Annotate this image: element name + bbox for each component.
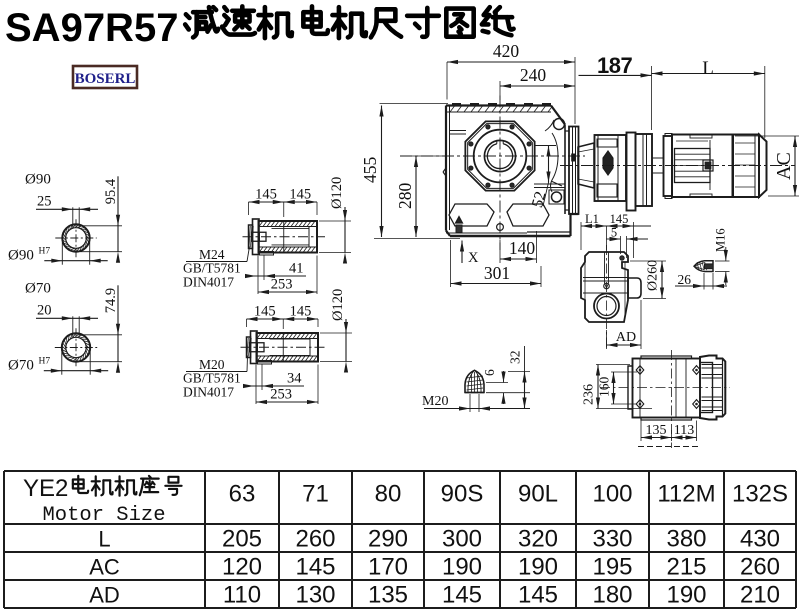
svg-text:430: 430 [740, 526, 780, 553]
svg-text:H7: H7 [39, 247, 51, 257]
svg-text:90S: 90S [441, 481, 484, 508]
svg-text:455: 455 [360, 157, 380, 184]
svg-text:145: 145 [442, 582, 482, 609]
svg-text:190: 190 [518, 554, 558, 581]
svg-text:236: 236 [582, 384, 597, 405]
svg-text:41: 41 [289, 261, 304, 277]
svg-text:L: L [702, 58, 714, 79]
svg-text:253: 253 [270, 387, 292, 403]
svg-text:145: 145 [295, 554, 335, 581]
svg-text:6: 6 [482, 369, 497, 376]
svg-text:Ø70: Ø70 [8, 358, 34, 374]
svg-text:Ø90: Ø90 [8, 248, 34, 264]
svg-text:253: 253 [271, 277, 293, 293]
svg-text:74.9: 74.9 [103, 288, 119, 313]
svg-text:205: 205 [222, 526, 262, 553]
svg-text:DIN4017: DIN4017 [183, 275, 234, 290]
svg-text:AC: AC [773, 152, 795, 180]
svg-text:Ø70: Ø70 [25, 280, 51, 296]
svg-text:M16: M16 [713, 228, 727, 252]
svg-text:95.4: 95.4 [103, 178, 119, 204]
svg-text:100: 100 [592, 481, 632, 508]
svg-text:190: 190 [442, 554, 482, 581]
svg-text:210: 210 [740, 582, 780, 609]
svg-text:71: 71 [302, 481, 329, 508]
svg-text:330: 330 [592, 526, 632, 553]
svg-text:320: 320 [518, 526, 558, 553]
svg-text:25: 25 [37, 193, 52, 209]
svg-text:80: 80 [375, 481, 402, 508]
svg-text:26: 26 [678, 272, 692, 287]
svg-text:L1: L1 [585, 212, 599, 226]
svg-text:DIN4017: DIN4017 [183, 385, 234, 400]
svg-text:SA97R57: SA97R57 [5, 6, 178, 50]
svg-text:380: 380 [666, 526, 706, 553]
svg-text:170: 170 [368, 554, 408, 581]
svg-text:180: 180 [592, 582, 632, 609]
svg-text:AC: AC [89, 555, 120, 580]
svg-text:AD: AD [89, 583, 120, 608]
svg-text:Motor Size: Motor Size [42, 504, 165, 527]
svg-text:280: 280 [395, 183, 415, 210]
svg-text:AD: AD [616, 330, 636, 345]
svg-text:5: 5 [611, 226, 617, 240]
svg-text:420: 420 [493, 41, 520, 61]
svg-text:Ø90: Ø90 [25, 171, 51, 187]
svg-text:20: 20 [37, 302, 52, 318]
svg-text:215: 215 [666, 554, 706, 581]
svg-text:112M: 112M [657, 481, 715, 508]
svg-text:M20: M20 [422, 394, 448, 409]
svg-text:195: 195 [592, 554, 632, 581]
svg-text:187: 187 [597, 53, 632, 78]
svg-text:BOSERL: BOSERL [75, 71, 136, 87]
svg-text:145: 145 [610, 212, 629, 226]
svg-text:260: 260 [740, 554, 780, 581]
svg-text:190: 190 [666, 582, 706, 609]
svg-text:90L: 90L [518, 481, 558, 508]
svg-text:H7: H7 [39, 357, 51, 367]
svg-text:290: 290 [368, 526, 408, 553]
svg-text:YE2: YE2 [23, 475, 68, 502]
svg-text:GB/T5781: GB/T5781 [183, 371, 241, 386]
svg-text:301: 301 [484, 263, 510, 283]
svg-text:145: 145 [518, 582, 558, 609]
svg-text:160: 160 [597, 377, 612, 398]
svg-text:300: 300 [442, 526, 482, 553]
svg-text:145: 145 [289, 187, 311, 203]
svg-text:140: 140 [509, 238, 536, 258]
svg-text:132S: 132S [732, 481, 788, 508]
svg-text:Ø260: Ø260 [646, 260, 661, 291]
svg-text:113: 113 [674, 423, 694, 438]
svg-text:145: 145 [255, 187, 277, 203]
svg-text:145: 145 [290, 304, 312, 320]
svg-text:63: 63 [229, 481, 256, 508]
svg-text:32: 32 [508, 351, 523, 365]
svg-text:110: 110 [223, 582, 261, 609]
svg-text:145: 145 [254, 304, 276, 320]
svg-text:Ø120: Ø120 [329, 177, 345, 209]
svg-text:135: 135 [646, 423, 667, 438]
svg-text:Ø120: Ø120 [330, 289, 346, 321]
svg-text:130: 130 [295, 582, 335, 609]
svg-text:240: 240 [520, 65, 547, 85]
svg-text:135: 135 [368, 582, 408, 609]
svg-text:260: 260 [295, 526, 335, 553]
svg-text:GB/T5781: GB/T5781 [183, 261, 241, 276]
svg-text:L: L [98, 527, 110, 552]
svg-text:X: X [468, 250, 479, 266]
svg-text:120: 120 [222, 554, 262, 581]
svg-text:34: 34 [287, 371, 302, 387]
